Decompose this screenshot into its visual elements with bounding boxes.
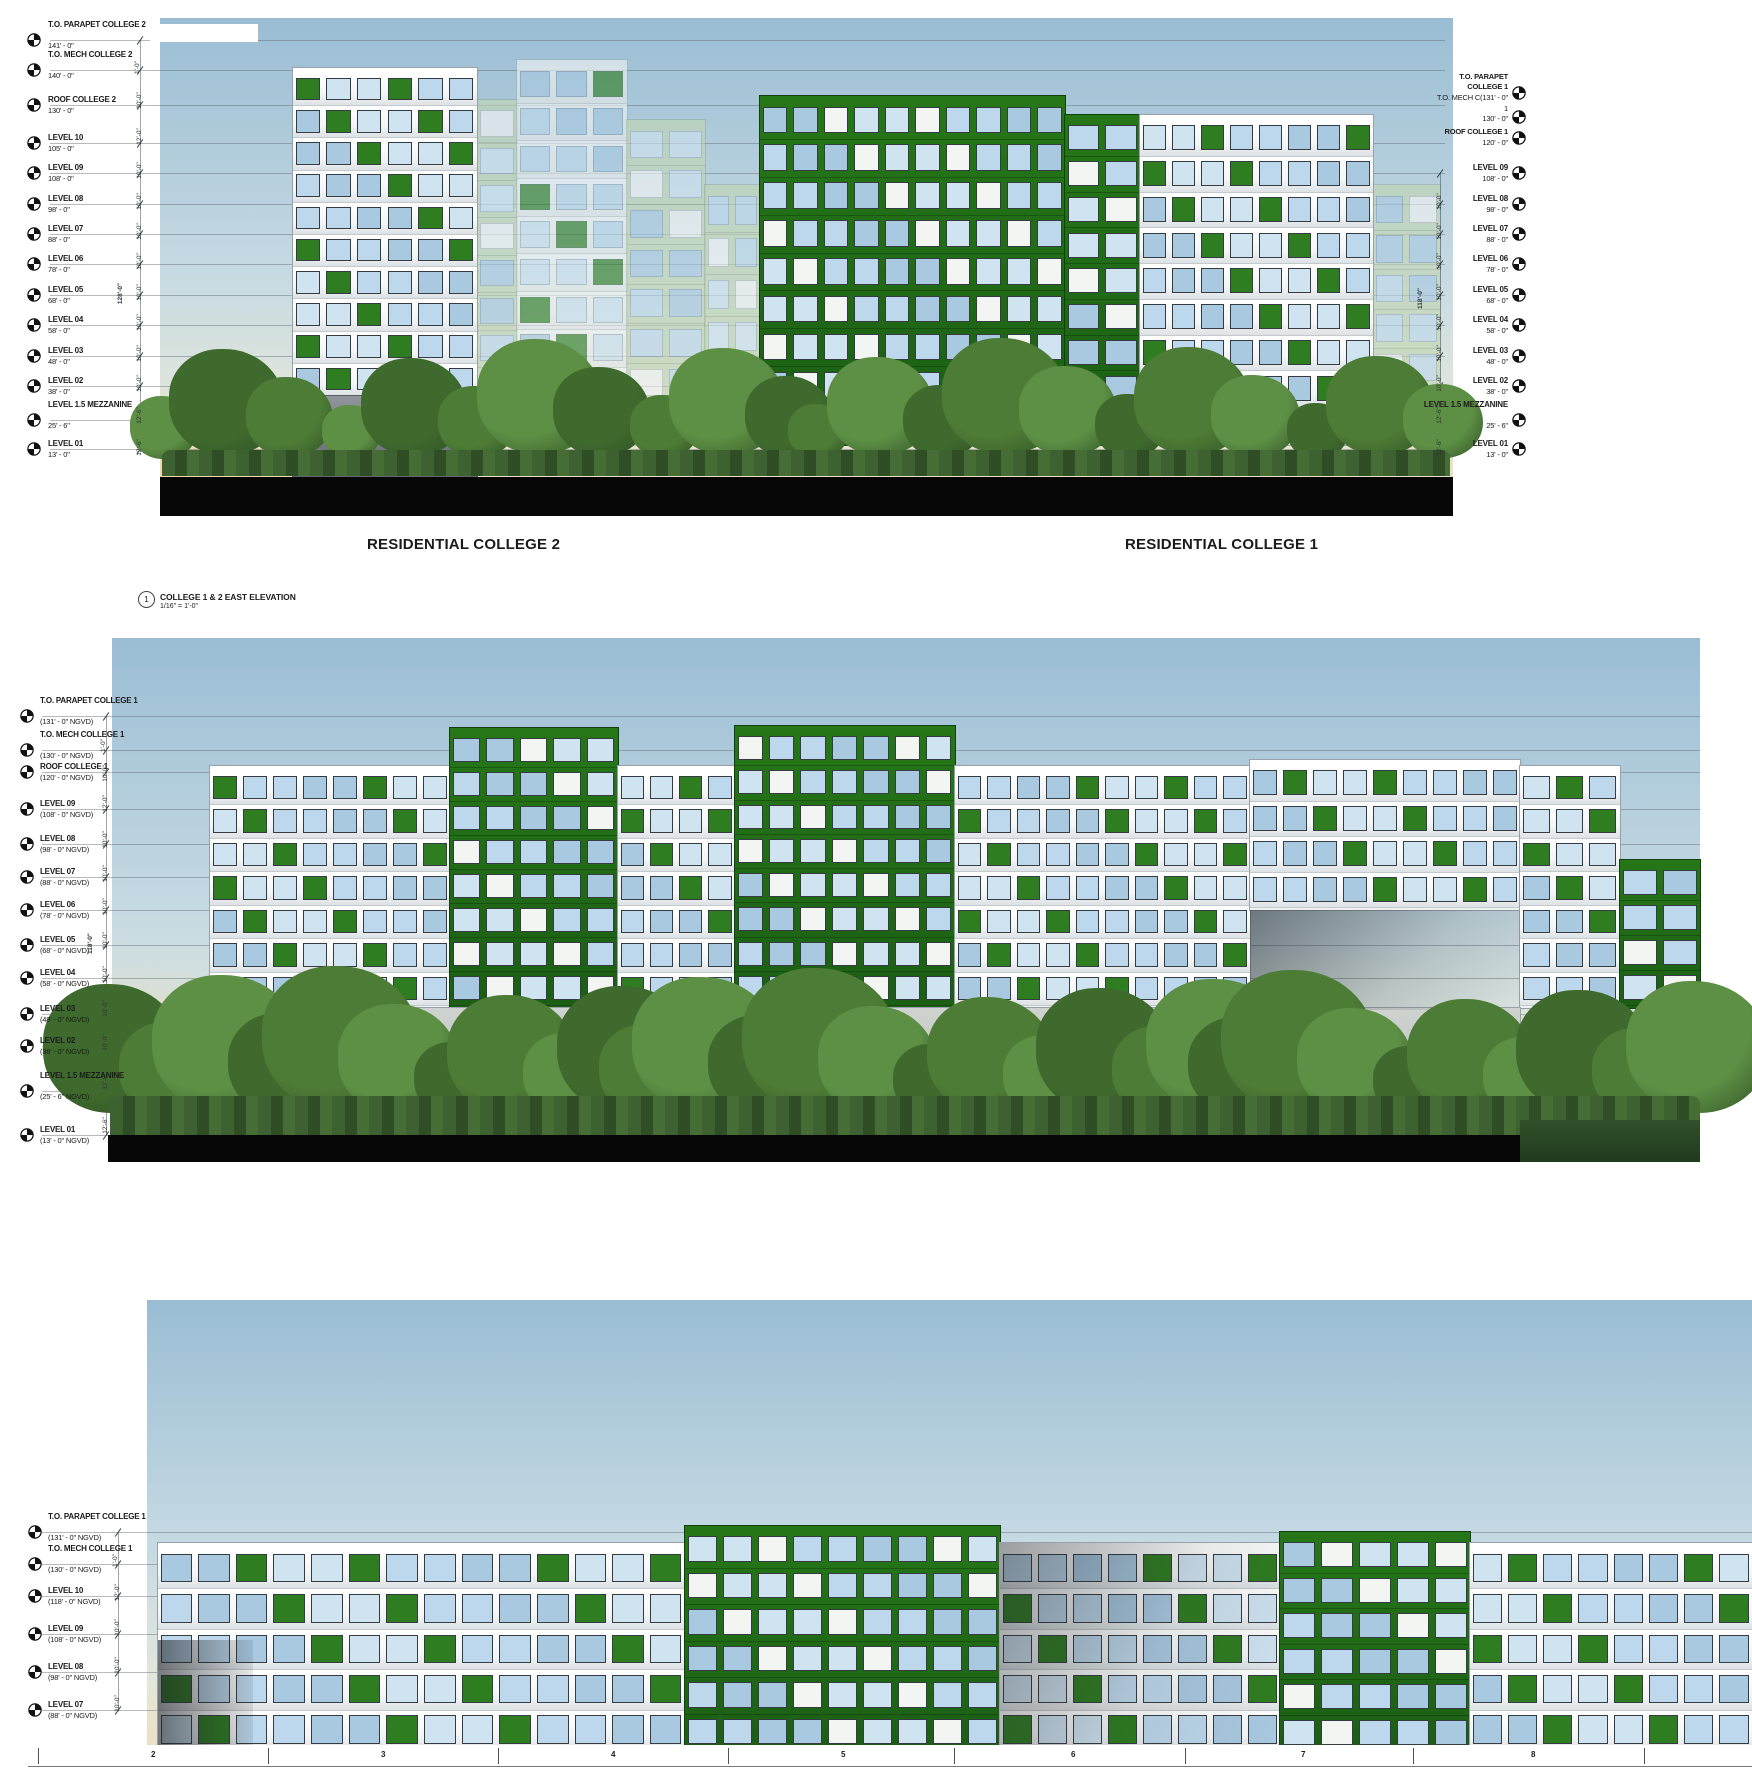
window <box>453 738 481 762</box>
window <box>758 1646 787 1672</box>
level-label: 120' - 0" <box>1368 138 1508 147</box>
window <box>553 942 581 966</box>
floor-band <box>955 805 1250 838</box>
window <box>449 110 474 133</box>
window <box>1194 876 1218 899</box>
window <box>708 322 730 351</box>
floor-band <box>955 839 1250 872</box>
dimension-text: 10'-0" <box>102 932 109 949</box>
window <box>1649 1635 1678 1663</box>
middle-white-section <box>618 766 735 1008</box>
dimension-text: 10'-0" <box>102 765 109 782</box>
bottom-green-tower <box>685 1526 1000 1753</box>
window <box>449 335 474 358</box>
dimension-total: 118'-0" <box>1417 288 1424 309</box>
floor-band <box>685 1678 1000 1715</box>
window <box>738 736 763 760</box>
dimension-text: 12'-6" <box>102 1073 109 1090</box>
window <box>1143 161 1166 186</box>
level-label: LEVEL 10 <box>48 1586 158 1595</box>
level-label: LEVEL 09 <box>40 799 155 808</box>
window <box>1373 841 1397 866</box>
window <box>968 1536 997 1562</box>
window <box>480 148 514 174</box>
window <box>1194 910 1218 933</box>
window <box>1253 841 1277 866</box>
window <box>418 110 443 133</box>
window <box>828 1719 857 1745</box>
window <box>1105 876 1129 899</box>
window <box>828 1573 857 1599</box>
window <box>1614 1635 1643 1663</box>
floor-band <box>705 275 760 317</box>
window <box>363 943 387 966</box>
window <box>885 296 910 323</box>
window <box>1017 977 1041 1000</box>
window <box>363 809 387 832</box>
window <box>769 839 794 863</box>
window <box>1321 1542 1353 1567</box>
view-scale: 1/16" = 1'-0" <box>160 603 198 610</box>
window <box>388 207 413 230</box>
window <box>1213 1715 1242 1743</box>
floor-band <box>705 233 760 275</box>
window <box>1073 1715 1102 1743</box>
window <box>480 223 514 249</box>
floor-band <box>517 179 627 217</box>
window <box>1135 776 1159 799</box>
level-label: LEVEL 05 <box>40 935 155 944</box>
window <box>1321 1578 1353 1603</box>
window <box>650 776 673 799</box>
level-line <box>50 70 1445 71</box>
window <box>650 876 673 899</box>
window <box>1076 910 1100 933</box>
window <box>650 1635 682 1663</box>
window <box>1433 877 1457 902</box>
level-value: 130' - 0" <box>48 107 148 115</box>
level-value: (13' - 0" NGVD) <box>40 1137 155 1145</box>
window <box>453 874 481 898</box>
level-value: 98' - 0" <box>1380 206 1508 214</box>
level-value: 38' - 0" <box>48 388 148 396</box>
level-label: T.O. MECH C(131' - 0" <box>1368 93 1508 102</box>
window <box>311 1635 343 1663</box>
window <box>863 1573 892 1599</box>
window <box>669 210 702 238</box>
window <box>243 876 267 899</box>
window <box>1321 1684 1353 1709</box>
window <box>423 943 447 966</box>
window <box>520 221 551 247</box>
window <box>1172 304 1195 329</box>
window <box>486 840 514 864</box>
floor-band <box>685 1642 1000 1679</box>
window <box>926 805 951 829</box>
window <box>895 805 920 829</box>
floor-band <box>477 218 517 255</box>
level-datum-icon <box>27 288 41 302</box>
window <box>1201 268 1224 293</box>
window <box>1259 304 1282 329</box>
window <box>946 144 971 171</box>
window <box>296 271 321 294</box>
window <box>1317 304 1340 329</box>
window <box>800 839 825 863</box>
window <box>793 296 818 323</box>
window <box>1523 843 1550 866</box>
window <box>587 840 615 864</box>
dimension-text: 10'-0" <box>136 223 143 240</box>
window <box>793 144 818 171</box>
level-value: (98' - 0" NGVD) <box>40 846 155 854</box>
window <box>1073 1594 1102 1622</box>
window <box>1223 843 1247 866</box>
window <box>1663 940 1697 965</box>
window <box>556 108 587 134</box>
level-datum-icon <box>27 227 41 241</box>
window <box>480 298 514 324</box>
window <box>976 258 1001 285</box>
window <box>1003 1675 1032 1703</box>
window <box>669 131 702 159</box>
window <box>1076 809 1100 832</box>
window <box>612 1554 644 1582</box>
window <box>1007 144 1032 171</box>
window <box>1288 233 1311 258</box>
level-datum-icon <box>28 1525 42 1539</box>
window <box>236 1715 268 1743</box>
floor-band <box>955 939 1250 972</box>
level-label: T.O. PARAPET COLLEGE 1 <box>40 696 155 705</box>
window <box>650 843 673 866</box>
level-label: LEVEL 08 <box>40 834 155 843</box>
bottom-white-block <box>158 1543 685 1753</box>
window <box>462 1594 494 1622</box>
window <box>895 839 920 863</box>
window <box>424 1675 456 1703</box>
window <box>1435 1578 1467 1603</box>
floor-band <box>1280 1609 1470 1645</box>
window <box>520 738 548 762</box>
window <box>273 776 297 799</box>
floor-band <box>735 938 955 972</box>
window <box>1543 1594 1572 1622</box>
view-number-badge: 1 <box>138 591 155 608</box>
window <box>1105 843 1129 866</box>
level-datum-icon <box>20 1128 34 1142</box>
window <box>933 1682 962 1708</box>
window <box>553 806 581 830</box>
bottom-white-block <box>1470 1543 1752 1753</box>
floor-band <box>685 1532 1000 1569</box>
level-label: LEVEL 1.5 MEZZANINE <box>48 400 148 409</box>
window <box>1223 910 1247 933</box>
level-label: LEVEL 01 <box>40 1125 155 1134</box>
window <box>462 1715 494 1743</box>
floor-band <box>477 143 517 180</box>
window <box>1007 220 1032 247</box>
window <box>958 776 982 799</box>
ruler-baseline <box>28 1766 1752 1767</box>
window <box>1143 304 1166 329</box>
window <box>480 185 514 211</box>
window <box>296 142 321 165</box>
window <box>688 1719 717 1745</box>
window <box>738 770 763 794</box>
window <box>393 943 417 966</box>
window <box>556 184 587 210</box>
level-datum-icon <box>20 971 34 985</box>
level-datum-icon <box>28 1589 42 1603</box>
window <box>1213 1675 1242 1703</box>
window <box>1037 220 1062 247</box>
window <box>1313 841 1337 866</box>
window <box>1068 161 1100 186</box>
window <box>1143 197 1166 222</box>
window <box>1346 125 1369 150</box>
window <box>1076 843 1100 866</box>
window <box>520 874 548 898</box>
level-value: (131' - 0" NGVD) <box>48 1534 158 1542</box>
window <box>1663 905 1697 930</box>
window <box>738 942 763 966</box>
window <box>575 1675 607 1703</box>
window <box>1397 1720 1429 1745</box>
window <box>537 1675 569 1703</box>
window <box>333 776 357 799</box>
window <box>1194 843 1218 866</box>
floor-band <box>1250 873 1520 909</box>
window <box>1037 144 1062 171</box>
window <box>587 942 615 966</box>
level-label: 130' - 0" <box>1368 114 1508 123</box>
window <box>1435 1542 1467 1567</box>
window <box>520 108 551 134</box>
window <box>388 142 413 165</box>
window <box>976 296 1001 323</box>
window <box>854 144 879 171</box>
floor-band <box>1520 805 1620 838</box>
window <box>723 1536 752 1562</box>
grid-number: 6 <box>1071 1750 1075 1759</box>
window <box>423 876 447 899</box>
window <box>423 776 447 799</box>
level-label: ROOF COLLEGE 1 <box>40 762 155 771</box>
window <box>499 1635 531 1663</box>
window <box>1143 125 1166 150</box>
window <box>1108 1715 1137 1743</box>
window <box>863 873 888 897</box>
level-label: LEVEL 04 <box>1380 315 1508 324</box>
window <box>650 809 673 832</box>
grid-number: 2 <box>151 1750 155 1759</box>
window <box>987 843 1011 866</box>
level-value: (108' - 0" NGVD) <box>40 811 155 819</box>
window <box>1143 1675 1172 1703</box>
window <box>1578 1715 1607 1743</box>
level-value: 88' - 0" <box>1380 236 1508 244</box>
tree <box>1626 981 1752 1113</box>
dimension-text: 12'-6" <box>1436 407 1443 424</box>
window <box>976 107 1001 134</box>
window <box>1038 1554 1067 1582</box>
bottom-white-block <box>1000 1543 1280 1753</box>
window <box>650 1675 682 1703</box>
dimension-text: 10'-0" <box>1436 314 1443 331</box>
window <box>1543 1554 1572 1582</box>
window <box>1038 1715 1067 1743</box>
window <box>968 1682 997 1708</box>
window <box>1003 1635 1032 1663</box>
window <box>243 843 267 866</box>
hedge-row <box>110 1096 1700 1136</box>
window <box>1346 233 1369 258</box>
window <box>553 908 581 932</box>
level-datum-icon <box>1512 197 1526 211</box>
floor-band <box>210 872 450 905</box>
window <box>1108 1554 1137 1582</box>
window <box>1373 770 1397 795</box>
level-label: LEVEL 1.5 MEZZANINE <box>1380 400 1508 409</box>
window <box>1068 233 1100 258</box>
window <box>213 876 237 899</box>
window <box>958 910 982 933</box>
window <box>575 1554 607 1582</box>
floor-band <box>1520 939 1620 972</box>
level-datum-icon <box>20 802 34 816</box>
window <box>1288 197 1311 222</box>
window <box>763 258 788 285</box>
floor-band <box>618 872 735 905</box>
window <box>1105 304 1137 329</box>
window <box>630 289 663 317</box>
window <box>621 809 644 832</box>
window <box>885 182 910 209</box>
floor-band <box>1520 872 1620 905</box>
window <box>612 1635 644 1663</box>
window <box>575 1715 607 1743</box>
window <box>1046 943 1070 966</box>
window <box>1283 1649 1315 1674</box>
window <box>898 1536 927 1562</box>
level-label: LEVEL 09 <box>1380 163 1508 172</box>
window <box>1037 296 1062 323</box>
window <box>1321 1649 1353 1674</box>
level-datum-icon <box>1512 166 1526 180</box>
window <box>1164 943 1188 966</box>
window <box>1313 877 1337 902</box>
floor-band <box>1280 1645 1470 1681</box>
floor-band <box>1620 866 1700 901</box>
window <box>363 843 387 866</box>
window <box>946 107 971 134</box>
window <box>418 303 443 326</box>
dimension-text: 1'-0" <box>112 1554 119 1567</box>
window <box>453 976 481 1000</box>
window <box>1259 233 1282 258</box>
level-value: 58' - 0" <box>1380 327 1508 335</box>
window <box>987 876 1011 899</box>
window <box>161 1675 193 1703</box>
window <box>987 776 1011 799</box>
window <box>828 1536 857 1562</box>
level-datum-icon <box>27 257 41 271</box>
window <box>1614 1594 1643 1622</box>
floor-band <box>477 106 517 143</box>
level-value: 68' - 0" <box>48 297 148 305</box>
window <box>303 910 327 933</box>
window <box>854 182 879 209</box>
window <box>575 1594 607 1622</box>
level-value: (130' - 0" NGVD) <box>48 1566 158 1574</box>
window <box>669 289 702 317</box>
window <box>1105 125 1137 150</box>
floor-band <box>450 904 618 938</box>
level-label: LEVEL 06 <box>1380 254 1508 263</box>
window <box>621 910 644 933</box>
window <box>1253 806 1277 831</box>
window <box>556 259 587 285</box>
window <box>1068 304 1100 329</box>
window <box>388 303 413 326</box>
window <box>1046 809 1070 832</box>
floor-band <box>293 138 477 170</box>
level-value: 13' - 0" <box>48 451 148 459</box>
window <box>769 907 794 931</box>
window <box>161 1715 193 1743</box>
window <box>1164 910 1188 933</box>
level-line <box>50 105 1445 106</box>
window <box>1143 1594 1172 1622</box>
window <box>1589 843 1616 866</box>
window <box>1135 943 1159 966</box>
window <box>800 907 825 931</box>
level-datum-icon <box>20 709 34 723</box>
window <box>388 174 413 197</box>
window <box>418 78 443 101</box>
level-value: (120' - 0" NGVD) <box>40 774 155 782</box>
level-value: 13' - 0" <box>1380 451 1508 459</box>
level-label: LEVEL 07 <box>40 867 155 876</box>
window <box>723 1719 752 1745</box>
grid-number: 3 <box>381 1750 385 1759</box>
window <box>1589 943 1616 966</box>
window <box>758 1682 787 1708</box>
window <box>1248 1715 1277 1743</box>
window <box>520 942 548 966</box>
window <box>1248 1675 1277 1703</box>
window <box>486 772 514 796</box>
window <box>1213 1635 1242 1663</box>
window <box>946 220 971 247</box>
window <box>449 239 474 262</box>
window <box>388 78 413 101</box>
window <box>824 144 849 171</box>
level-datum-icon <box>1512 318 1526 332</box>
level-value: 38' - 0" <box>1380 388 1508 396</box>
floor-band <box>293 267 477 299</box>
window <box>273 910 297 933</box>
level-label: LEVEL 01 <box>48 439 148 448</box>
window <box>1589 776 1616 799</box>
window <box>499 1554 531 1582</box>
window <box>1556 809 1583 832</box>
floor-band <box>735 869 955 903</box>
floor-band <box>955 872 1250 905</box>
level-datum-icon <box>20 903 34 917</box>
window <box>449 142 474 165</box>
